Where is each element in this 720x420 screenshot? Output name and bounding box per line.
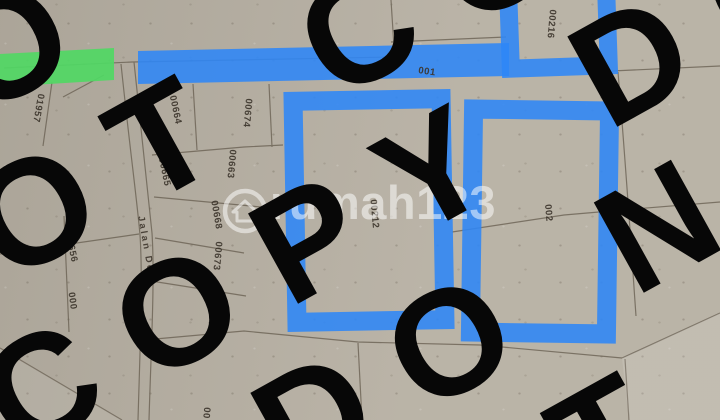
road-name-label: Jalan Des: [136, 215, 157, 281]
brand-watermark-text: rumah123: [270, 177, 496, 229]
parcel-label: 00667: [206, 297, 218, 327]
cadastral-map-photo: Jalan Des 019570066400674006650066300668…: [0, 0, 720, 420]
parcel-label: 000: [66, 292, 78, 311]
parcel-label: 00216: [545, 9, 557, 39]
parcel-label: 00664: [167, 95, 182, 126]
parcel-label: 01957: [31, 93, 45, 123]
parcel-label: 00674: [241, 98, 253, 128]
rumah123-logo-icon: [220, 185, 272, 237]
parcel-label: 00656: [63, 233, 78, 264]
parcel-label: 00663: [225, 149, 237, 179]
parcel-label: 00673: [211, 241, 223, 271]
parcel-label: 001: [418, 66, 437, 78]
parcel-label: 00665: [156, 157, 171, 188]
brand-watermark: rumah123: [220, 185, 520, 237]
parcel-label: 00: [201, 407, 211, 420]
parcel-label: 002: [543, 204, 554, 222]
